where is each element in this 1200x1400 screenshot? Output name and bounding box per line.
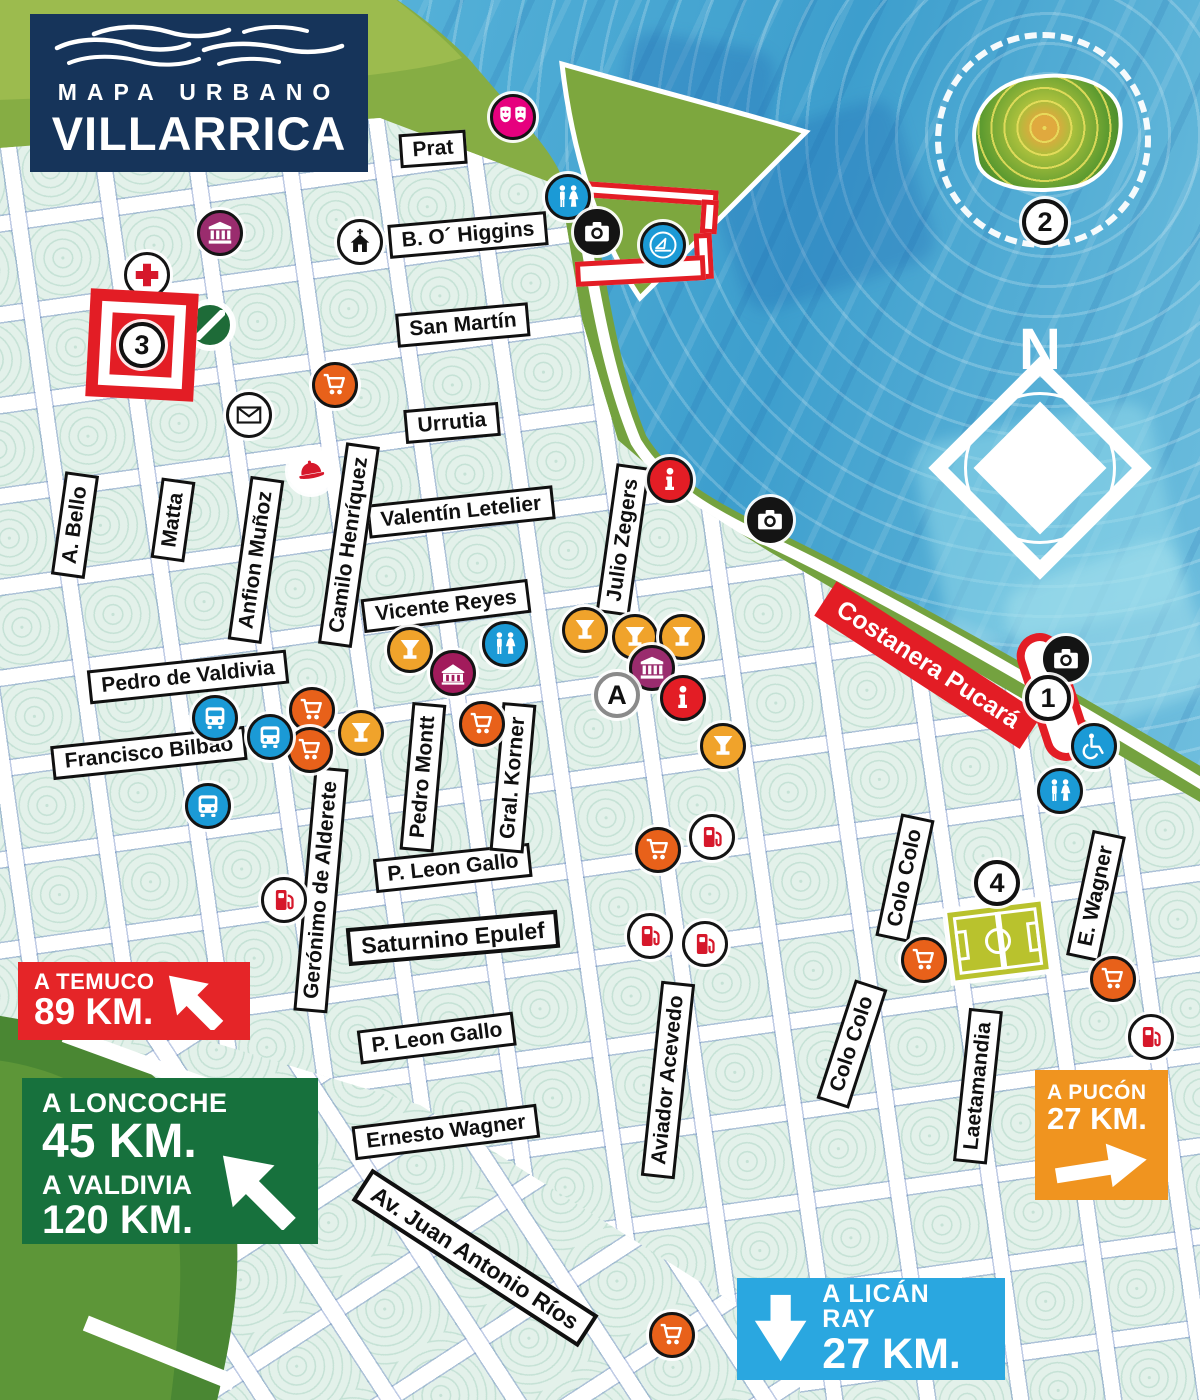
gas-icon: [682, 921, 728, 967]
cart-icon: [901, 937, 947, 983]
fire-helmet-icon: [288, 448, 334, 494]
marker-a: A: [594, 672, 640, 718]
wheelchair-icon: [1071, 723, 1117, 769]
cart-icon: [459, 701, 505, 747]
map-title-line2: VILLARRICA: [30, 106, 368, 161]
camera-icon: [574, 209, 620, 255]
info-icon: [647, 457, 693, 503]
theater-icon: [490, 94, 536, 140]
bus-icon: [247, 714, 293, 760]
boat-icon: [640, 222, 686, 268]
marker-4: 4: [974, 860, 1020, 906]
camera-icon: [747, 497, 793, 543]
marker-2: 2: [1022, 199, 1068, 245]
sign-licanray: A LICÁN RAY27 KM.: [737, 1278, 1005, 1380]
soccer-field: [947, 902, 1049, 981]
sign-loncoche: A LONCOCHE 45 KM. A VALDIVIA 120 KM.: [22, 1078, 318, 1244]
bus-icon: [192, 695, 238, 741]
gas-icon: [689, 814, 735, 860]
gas-icon: [1128, 1014, 1174, 1060]
waves-logo-icon: [39, 20, 359, 72]
map-title-line1: MAPA URBANO: [30, 79, 368, 106]
arrow-up-left-icon: [165, 972, 229, 1030]
arrow-up-left-icon: [218, 1150, 304, 1230]
gas-icon: [627, 913, 673, 959]
map-title-box: MAPA URBANO VILLARRICA: [30, 14, 368, 172]
marker-1: 1: [1025, 675, 1071, 721]
sign-pucon: A PUCÓN 27 KM.: [1035, 1070, 1168, 1200]
street-label-prat: Prat: [398, 130, 467, 169]
sign-temuco: A TEMUCO89 KM.: [18, 962, 250, 1040]
drink-icon: [562, 607, 608, 653]
wc-icon: [482, 621, 528, 667]
villarrica-urban-map: N Prat B. O´ Higgins San Martín Urrutia …: [0, 0, 1200, 1400]
drink-icon: [387, 627, 433, 673]
gas-icon: [261, 877, 307, 923]
heritage-house-icon: [430, 650, 476, 696]
info-icon: [660, 675, 706, 721]
church-icon: [337, 219, 383, 265]
wc-icon: [1037, 768, 1083, 814]
arrow-down-icon: [753, 1293, 808, 1365]
cart-icon: [312, 362, 358, 408]
cart-icon: [1090, 956, 1136, 1002]
drink-icon: [700, 723, 746, 769]
museum-icon: [197, 210, 243, 256]
bus-icon: [185, 783, 231, 829]
cart-icon: [287, 727, 333, 773]
arrow-right-icon: [1047, 1139, 1152, 1191]
drink-icon: [338, 710, 384, 756]
cart-icon: [649, 1312, 695, 1358]
mail-icon: [226, 392, 272, 438]
cart-icon: [635, 827, 681, 873]
marker-3-frame: 3: [85, 288, 199, 402]
